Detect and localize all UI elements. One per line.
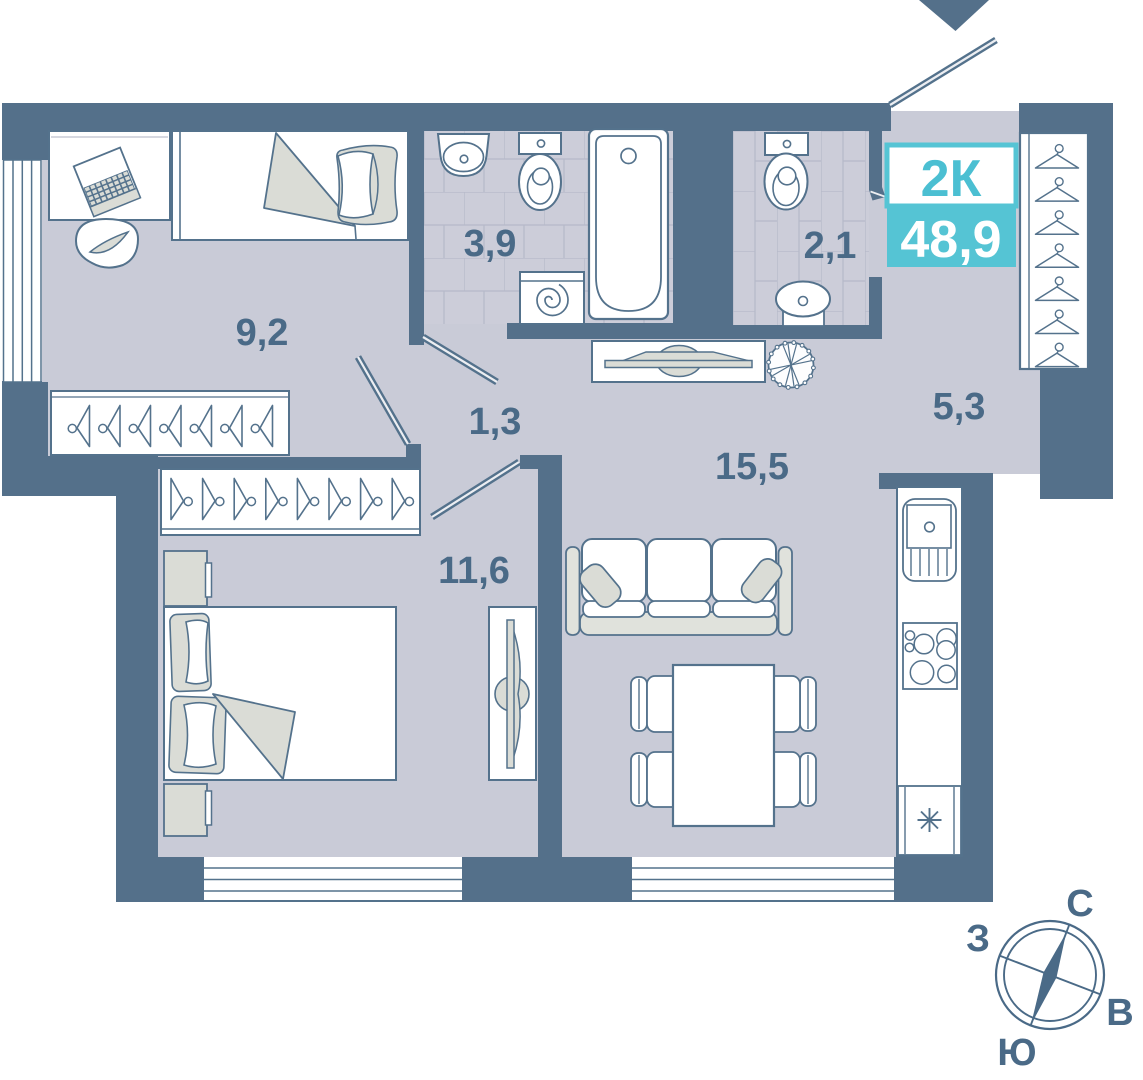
svg-text:В: В [1106,992,1133,1034]
svg-text:Ю: Ю [997,1032,1036,1074]
svg-text:2,1: 2,1 [804,225,857,267]
svg-text:48,9: 48,9 [900,211,1001,269]
svg-text:5,3: 5,3 [933,386,986,428]
svg-text:15,5: 15,5 [715,446,789,488]
svg-text:11,6: 11,6 [438,550,510,592]
svg-text:2К: 2К [921,150,982,208]
svg-text:1,3: 1,3 [469,401,522,443]
svg-text:3,9: 3,9 [464,223,517,265]
svg-text:С: С [1066,883,1093,925]
svg-text:9,2: 9,2 [236,312,289,354]
svg-text:З: З [966,918,990,960]
